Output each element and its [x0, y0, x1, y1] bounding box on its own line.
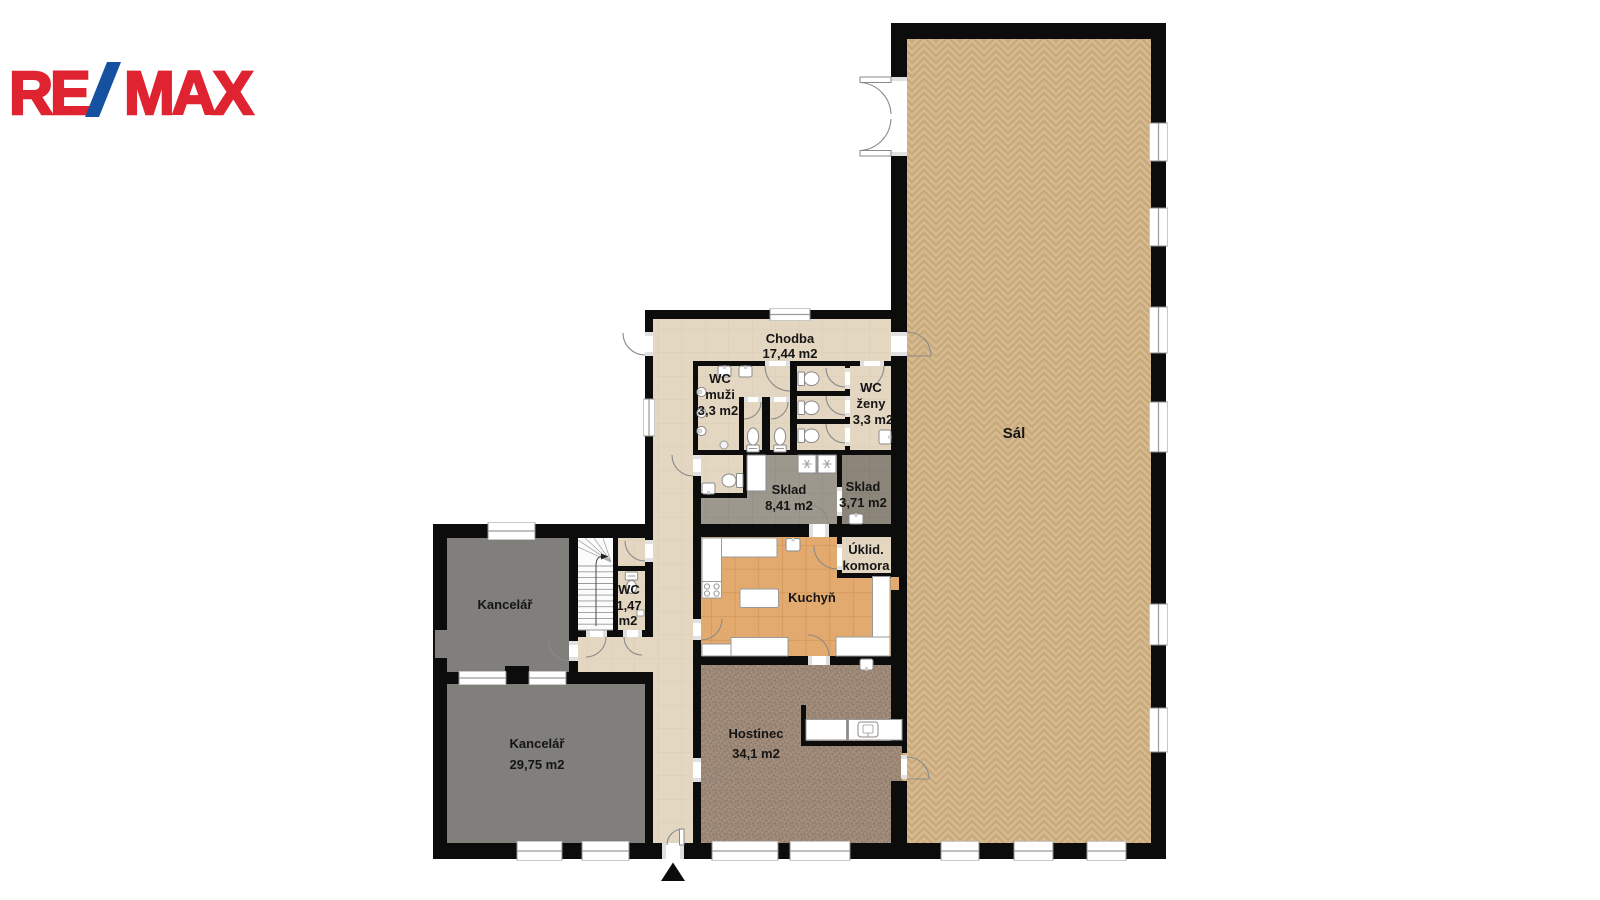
svg-text:8,41 m2: 8,41 m2 — [765, 498, 813, 513]
svg-text:Úklid.: Úklid. — [848, 542, 883, 557]
svg-text:3,3 m2: 3,3 m2 — [853, 412, 893, 427]
svg-text:Chodba: Chodba — [766, 331, 815, 346]
svg-text:Kuchyň: Kuchyň — [788, 590, 836, 605]
svg-text:1,47: 1,47 — [616, 598, 641, 613]
svg-text:m2: m2 — [619, 613, 638, 628]
svg-text:Sklad: Sklad — [846, 479, 881, 494]
svg-text:Sklad: Sklad — [772, 482, 807, 497]
svg-text:17,44 m2: 17,44 m2 — [763, 346, 818, 361]
svg-text:WC: WC — [618, 582, 640, 597]
svg-text:WC: WC — [860, 380, 882, 395]
svg-text:MAX: MAX — [124, 59, 254, 127]
svg-text:ženy: ženy — [857, 396, 887, 411]
svg-text:3,3 m2: 3,3 m2 — [698, 403, 738, 418]
svg-text:Kancelář: Kancelář — [510, 736, 566, 751]
svg-text:Sál: Sál — [1003, 425, 1026, 442]
svg-text:RE: RE — [9, 59, 89, 127]
svg-text:komora: komora — [843, 558, 891, 573]
svg-text:Hostinec: Hostinec — [729, 726, 784, 741]
svg-text:34,1 m2: 34,1 m2 — [732, 746, 780, 761]
svg-text:WC: WC — [709, 371, 731, 386]
svg-text:29,75 m2: 29,75 m2 — [510, 757, 565, 772]
svg-text:Kancelář: Kancelář — [478, 597, 534, 612]
svg-text:muži: muži — [705, 387, 735, 402]
svg-text:3,71 m2: 3,71 m2 — [839, 495, 887, 510]
